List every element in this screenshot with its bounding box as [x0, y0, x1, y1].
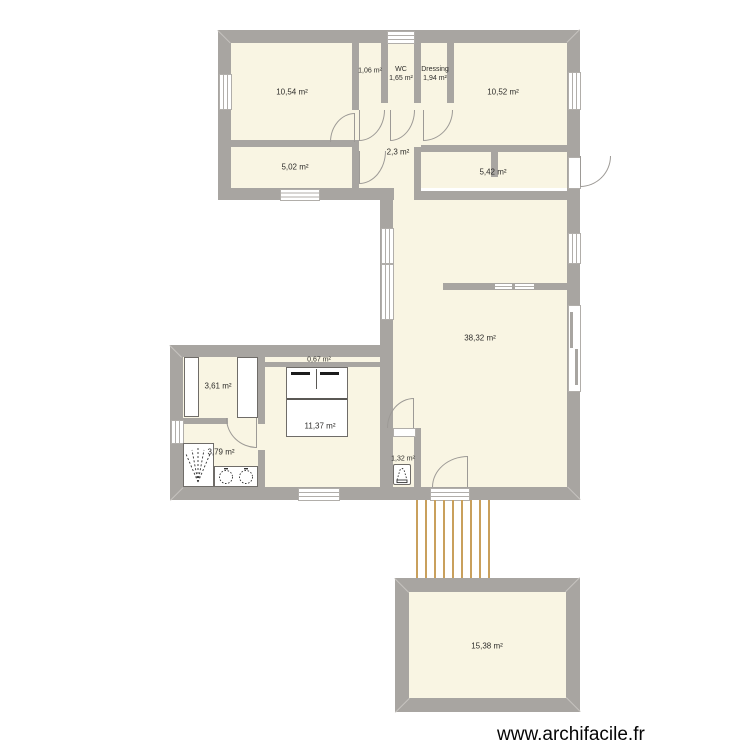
room-label: 0,67 m² [307, 356, 331, 365]
room-label: 10,52 m² [487, 88, 519, 97]
window[interactable] [568, 233, 581, 264]
washbasin-unit[interactable] [214, 466, 258, 487]
floor-plan-canvas[interactable]: 10,54 m² 1,06 m² WC 1,65 m² Dressing 1,9… [0, 0, 750, 750]
room-area: 1,94 m² [423, 75, 447, 82]
wall[interactable] [258, 450, 265, 487]
blanket-line [287, 398, 347, 400]
room-label: 5,02 m² [281, 163, 308, 172]
window[interactable] [298, 488, 340, 501]
washbasin-icon [215, 467, 257, 486]
wall[interactable] [170, 345, 380, 357]
wall-opening[interactable] [515, 284, 534, 289]
door-leaf[interactable] [393, 428, 416, 437]
wall-opening[interactable] [495, 284, 512, 289]
room-label: 15,38 m² [471, 642, 503, 651]
stairs[interactable] [416, 500, 494, 578]
watermark: www.archifacile.fr [497, 724, 645, 746]
wall[interactable] [183, 418, 228, 424]
window[interactable] [219, 74, 232, 110]
wall[interactable] [395, 698, 580, 712]
room-label: WC 1,65 m² [389, 65, 413, 83]
room-label: Dressing 1,94 m² [421, 65, 449, 83]
room-label: 3,79 m² [207, 448, 234, 457]
bed-center-line [316, 369, 317, 389]
window[interactable] [568, 72, 581, 110]
room-name: WC [395, 66, 407, 73]
wall[interactable] [170, 487, 580, 500]
room-label: 38,32 m² [464, 334, 496, 343]
hall-connector-floor[interactable] [394, 188, 414, 200]
room-area: 1,65 m² [389, 75, 413, 82]
wall[interactable] [352, 43, 359, 110]
room-label: 3,61 m² [204, 382, 231, 391]
room-name: Dressing [421, 66, 449, 73]
wardrobe[interactable] [237, 357, 258, 418]
window[interactable] [381, 264, 394, 320]
wall[interactable] [352, 147, 359, 188]
wardrobe[interactable] [184, 357, 199, 417]
pillow [291, 372, 310, 375]
room-label: 1,32 m² [391, 455, 415, 464]
wall[interactable] [567, 43, 580, 500]
window[interactable] [381, 228, 394, 264]
wall[interactable] [258, 357, 265, 424]
wall[interactable] [414, 43, 421, 103]
wall[interactable] [414, 191, 567, 200]
window[interactable] [280, 189, 320, 201]
room-label: 1,06 m² [358, 67, 382, 76]
room-label: 5,42 m² [479, 168, 506, 177]
room-label: 10,54 m² [276, 88, 308, 97]
door-swing[interactable] [580, 156, 611, 187]
wall[interactable] [218, 43, 231, 200]
window[interactable] [387, 31, 415, 44]
wall[interactable] [566, 592, 580, 712]
wall[interactable] [421, 145, 567, 152]
wall[interactable] [395, 592, 409, 712]
room-label: 2,3 m² [387, 148, 410, 157]
toilet[interactable] [393, 464, 411, 485]
room-label: 11,37 m² [305, 422, 336, 431]
wall[interactable] [395, 578, 580, 592]
sliding-bay-window[interactable] [568, 305, 581, 392]
pillow [320, 372, 339, 375]
window[interactable] [171, 420, 184, 444]
toilet-icon [394, 465, 410, 484]
